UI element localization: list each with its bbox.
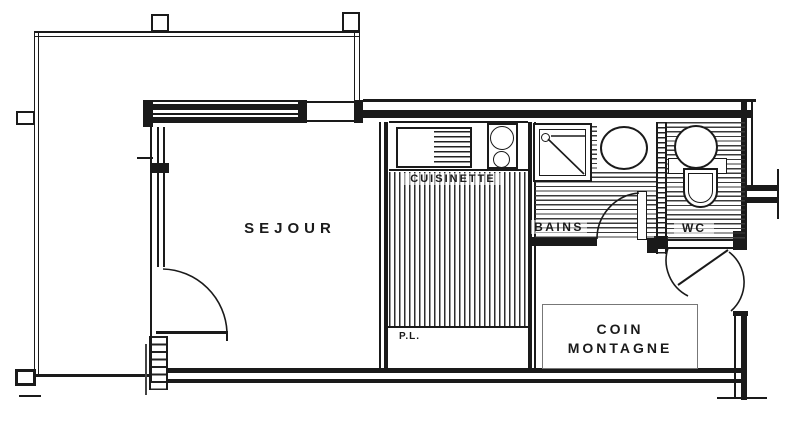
balcony-door-leaf-tip bbox=[226, 331, 228, 341]
burner-icon bbox=[490, 126, 514, 150]
toilet-tank-icon bbox=[674, 125, 718, 169]
room-label-coin: COIN bbox=[542, 321, 698, 337]
sejour-window-band bbox=[143, 113, 306, 115]
partition-bains-wc bbox=[656, 122, 667, 254]
balcony-door-leaf bbox=[156, 331, 228, 334]
sejour-window-band bbox=[143, 104, 306, 110]
balcony-divider-line bbox=[145, 344, 147, 395]
counter-bottom-line bbox=[389, 169, 528, 171]
wc-bottom-wall bbox=[667, 239, 733, 249]
room-label-wc: WC bbox=[674, 221, 714, 235]
entrance-door-leaf bbox=[678, 250, 728, 285]
left-window-glazing bbox=[163, 127, 165, 267]
top-wall-outer bbox=[363, 99, 756, 102]
room-label-sejour: SEJOUR bbox=[240, 220, 340, 237]
window-mullion bbox=[152, 163, 169, 173]
room-label-placard: P.L. bbox=[399, 331, 420, 342]
bottom-wall bbox=[155, 368, 747, 383]
entrance-door-arc-small bbox=[666, 248, 688, 296]
left-wall-outer bbox=[150, 100, 152, 381]
balcony-post-icon bbox=[151, 14, 169, 32]
balcony-top-rail bbox=[34, 31, 359, 37]
corner-block bbox=[143, 100, 153, 127]
balcony-ledge-tick bbox=[137, 157, 153, 159]
sliding-bay-opening bbox=[307, 120, 354, 122]
shower-drain-icon bbox=[541, 133, 550, 142]
floor-plan: SEJOUR CUISINETTE BAINS WC P.L. COIN MON… bbox=[0, 0, 800, 427]
balcony-side-tab-icon bbox=[15, 369, 36, 386]
room-label-cuisinette: CUISINETTE bbox=[403, 173, 503, 185]
balcony-bottom-rail bbox=[19, 374, 157, 377]
ground-tick bbox=[19, 395, 41, 397]
toilet-bowl-inner bbox=[688, 173, 713, 203]
placard-line bbox=[385, 326, 528, 328]
bains-door-leaf bbox=[637, 191, 647, 240]
left-window-glazing bbox=[157, 127, 159, 267]
ground-tick bbox=[717, 397, 767, 399]
balcony-side-tab-icon bbox=[16, 111, 35, 125]
balcony-door-arc bbox=[163, 269, 227, 332]
right-wall-outer bbox=[751, 99, 753, 188]
partition-sejour-kitchen bbox=[379, 122, 381, 369]
washbasin-icon bbox=[600, 126, 648, 170]
right-wall-lower bbox=[741, 316, 747, 400]
right-wall-lower-thin bbox=[734, 316, 736, 398]
window-jamb bbox=[354, 100, 363, 123]
room-label-bains: BAINS bbox=[531, 220, 587, 234]
party-wall-line bbox=[777, 169, 779, 219]
entrance-door-arc-large bbox=[729, 252, 744, 311]
party-wall-stub bbox=[747, 185, 779, 191]
burner-icon bbox=[493, 151, 510, 168]
party-wall-stub bbox=[747, 197, 779, 203]
partition-sejour-kitchen bbox=[384, 122, 388, 369]
bains-bottom-wall bbox=[528, 237, 597, 246]
balcony-post-icon bbox=[342, 12, 360, 32]
sejour-window-band bbox=[143, 117, 306, 123]
sejour-window-band bbox=[143, 100, 306, 102]
window-jamb bbox=[298, 100, 307, 123]
bains-door-jamb bbox=[647, 238, 658, 253]
balcony-right-rail bbox=[354, 31, 360, 101]
top-wall-inner bbox=[363, 110, 751, 118]
sliding-bay-opening bbox=[307, 101, 354, 103]
sink-drainer-icon bbox=[434, 131, 470, 164]
room-label-montagne: MONTAGNE bbox=[542, 340, 698, 356]
kitchen-floor-hatch bbox=[389, 172, 528, 328]
balcony-left-rail bbox=[34, 31, 39, 375]
